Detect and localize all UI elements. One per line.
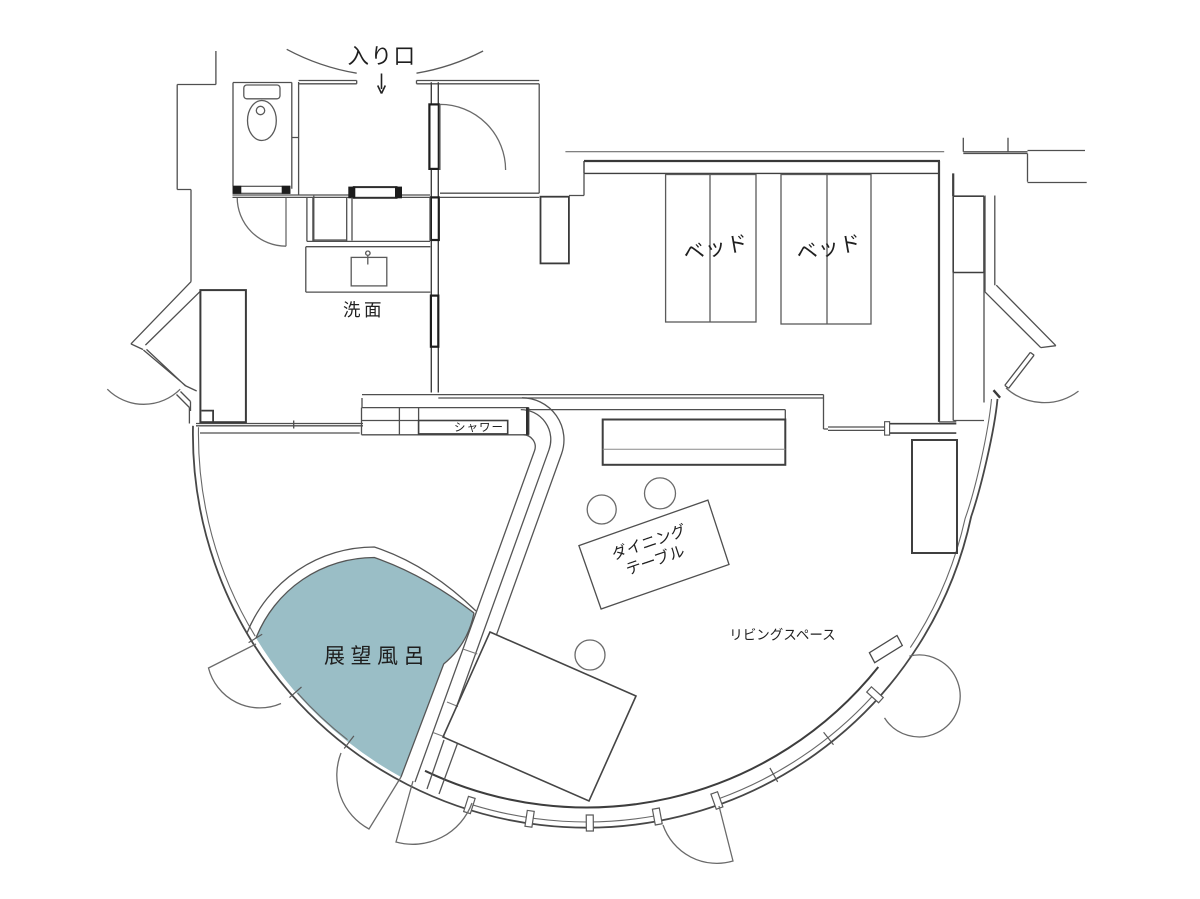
svg-text:ベッド: ベッド	[795, 231, 864, 265]
svg-text:展望風呂: 展望風呂	[324, 645, 430, 668]
svg-text:リビングスペース: リビングスペース	[729, 628, 835, 643]
svg-text:洗面: 洗面	[343, 300, 385, 320]
svg-text:シャワー: シャワー	[454, 422, 504, 434]
svg-text:ベッド: ベッド	[682, 231, 751, 265]
svg-text:入り口: 入り口	[347, 45, 416, 69]
